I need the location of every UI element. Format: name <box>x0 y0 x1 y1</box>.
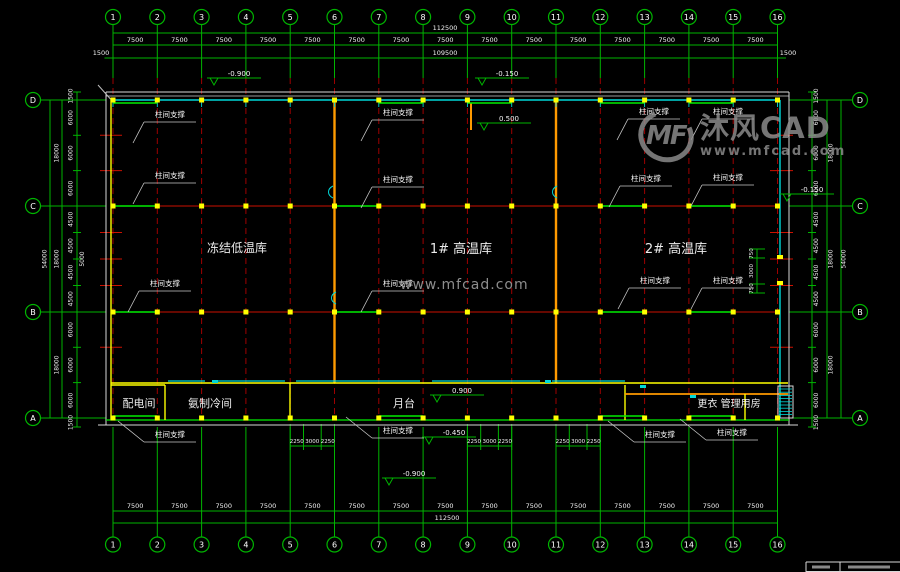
svg-text:1: 1 <box>110 13 115 22</box>
svg-text:2250: 2250 <box>556 439 570 445</box>
svg-text:柱间支撑: 柱间支撑 <box>155 429 185 439</box>
svg-text:4: 4 <box>243 13 248 22</box>
svg-text:7500: 7500 <box>304 36 321 44</box>
svg-text:1# 高温库: 1# 高温库 <box>430 241 492 257</box>
svg-text:4500: 4500 <box>813 264 820 279</box>
svg-text:109500: 109500 <box>433 49 458 57</box>
svg-text:7500: 7500 <box>260 502 277 510</box>
svg-text:11: 11 <box>551 13 561 22</box>
svg-text:18000: 18000 <box>828 355 835 374</box>
svg-text:16: 16 <box>772 541 782 550</box>
svg-text:6000: 6000 <box>813 357 820 372</box>
svg-text:7500: 7500 <box>570 36 587 44</box>
svg-text:7500: 7500 <box>215 502 232 510</box>
svg-text:6000: 6000 <box>68 322 75 337</box>
svg-text:7500: 7500 <box>437 502 454 510</box>
svg-text:柱间支撑: 柱间支撑 <box>645 429 675 439</box>
svg-text:4500: 4500 <box>813 211 820 226</box>
svg-text:1500: 1500 <box>93 49 110 57</box>
svg-text:3000: 3000 <box>305 439 319 445</box>
svg-text:-0.900: -0.900 <box>403 470 426 478</box>
svg-text:18000: 18000 <box>54 355 61 374</box>
svg-text:-0.150: -0.150 <box>496 70 519 78</box>
svg-text:3: 3 <box>199 541 204 550</box>
svg-text:4500: 4500 <box>68 238 75 253</box>
dimensions: 1125007500750075007500750075007500750075… <box>42 24 848 523</box>
svg-text:7500: 7500 <box>437 36 454 44</box>
svg-text:7500: 7500 <box>570 502 587 510</box>
svg-text:A: A <box>857 414 863 423</box>
svg-text:更衣 管理用房: 更衣 管理用房 <box>697 397 760 410</box>
svg-text:1500: 1500 <box>813 415 820 430</box>
svg-text:18000: 18000 <box>54 249 61 268</box>
svg-text:15: 15 <box>728 13 738 22</box>
svg-text:7: 7 <box>376 541 381 550</box>
svg-text:6000: 6000 <box>68 110 75 125</box>
svg-text:柱间支撑: 柱间支撑 <box>713 275 743 285</box>
svg-text:7500: 7500 <box>127 502 144 510</box>
svg-text:7500: 7500 <box>526 36 543 44</box>
svg-text:8: 8 <box>421 13 426 22</box>
svg-text:3: 3 <box>199 13 204 22</box>
svg-text:7500: 7500 <box>614 502 631 510</box>
svg-text:5000: 5000 <box>79 251 86 266</box>
svg-text:柱间支撑: 柱间支撑 <box>383 107 413 117</box>
svg-text:柱间支撑: 柱间支撑 <box>383 278 413 288</box>
svg-text:16: 16 <box>772 13 782 22</box>
svg-text:2250: 2250 <box>498 439 512 445</box>
svg-text:5: 5 <box>288 13 293 22</box>
svg-text:6: 6 <box>332 13 337 22</box>
svg-text:7: 7 <box>376 13 381 22</box>
svg-text:-0.450: -0.450 <box>443 429 466 437</box>
svg-text:9: 9 <box>465 541 470 550</box>
svg-text:2250: 2250 <box>467 439 481 445</box>
svg-text:11: 11 <box>551 541 561 550</box>
svg-text:7500: 7500 <box>481 36 498 44</box>
svg-text:柱间支撑: 柱间支撑 <box>383 174 413 184</box>
svg-text:柱间支撑: 柱间支撑 <box>713 106 743 116</box>
svg-text:-0.150: -0.150 <box>801 186 824 194</box>
svg-text:18000: 18000 <box>828 249 835 268</box>
svg-text:7500: 7500 <box>171 36 188 44</box>
svg-text:10: 10 <box>507 13 517 22</box>
svg-text:14: 14 <box>684 541 694 550</box>
svg-text:2250: 2250 <box>290 439 304 445</box>
svg-text:柱间支撑: 柱间支撑 <box>717 427 747 437</box>
svg-text:7500: 7500 <box>614 36 631 44</box>
svg-text:15: 15 <box>728 541 738 550</box>
svg-text:5: 5 <box>288 541 293 550</box>
svg-text:12: 12 <box>595 541 605 550</box>
svg-text:4500: 4500 <box>68 264 75 279</box>
svg-text:4500: 4500 <box>813 291 820 306</box>
svg-text:7500: 7500 <box>348 36 365 44</box>
svg-text:2250: 2250 <box>587 439 601 445</box>
floor-plan-canvas: 1122334455667788991010111112121313141415… <box>0 0 900 572</box>
svg-text:B: B <box>857 308 863 317</box>
svg-text:7500: 7500 <box>703 502 720 510</box>
svg-text:7500: 7500 <box>393 502 410 510</box>
svg-text:6000: 6000 <box>813 392 820 407</box>
svg-text:3000: 3000 <box>571 439 585 445</box>
svg-text:冻结低温库: 冻结低温库 <box>207 240 267 255</box>
svg-text:8: 8 <box>421 541 426 550</box>
svg-text:18000: 18000 <box>828 143 835 162</box>
svg-text:6000: 6000 <box>68 357 75 372</box>
svg-text:7500: 7500 <box>348 502 365 510</box>
svg-text:4: 4 <box>243 541 248 550</box>
svg-text:2250: 2250 <box>321 439 335 445</box>
svg-text:氨制冷间: 氨制冷间 <box>188 397 232 410</box>
svg-text:7500: 7500 <box>260 36 277 44</box>
svg-text:7500: 7500 <box>526 502 543 510</box>
svg-text:18000: 18000 <box>54 143 61 162</box>
svg-text:112500: 112500 <box>435 514 460 522</box>
columns <box>111 98 781 421</box>
svg-text:750: 750 <box>749 248 755 259</box>
svg-text:10: 10 <box>507 541 517 550</box>
svg-text:6000: 6000 <box>813 110 820 125</box>
svg-text:6000: 6000 <box>68 145 75 160</box>
svg-text:7500: 7500 <box>747 502 764 510</box>
svg-text:3000: 3000 <box>483 439 497 445</box>
svg-text:13: 13 <box>640 13 650 22</box>
svg-text:7500: 7500 <box>393 36 410 44</box>
svg-text:0.500: 0.500 <box>499 115 519 123</box>
svg-text:1500: 1500 <box>813 88 820 103</box>
svg-text:柱间支撑: 柱间支撑 <box>713 172 743 182</box>
svg-text:3000: 3000 <box>749 264 755 278</box>
svg-text:6000: 6000 <box>68 180 75 195</box>
svg-text:1500: 1500 <box>780 49 797 57</box>
svg-text:112500: 112500 <box>433 24 458 32</box>
svg-text:C: C <box>30 202 36 211</box>
svg-text:13: 13 <box>640 541 650 550</box>
title-block <box>806 562 900 572</box>
svg-text:B: B <box>30 308 36 317</box>
svg-text:7500: 7500 <box>747 36 764 44</box>
svg-text:柱间支撑: 柱间支撑 <box>639 106 669 116</box>
svg-text:12: 12 <box>595 13 605 22</box>
svg-text:1: 1 <box>110 541 115 550</box>
svg-text:0.900: 0.900 <box>452 387 472 395</box>
svg-text:D: D <box>30 96 36 105</box>
svg-text:配电间: 配电间 <box>123 397 156 410</box>
svg-text:7500: 7500 <box>481 502 498 510</box>
brace-labels: 柱间支撑柱间支撑柱间支撑柱间支撑柱间支撑柱间支撑柱间支撑柱间支撑柱间支撑柱间支撑… <box>118 106 758 442</box>
svg-text:1500: 1500 <box>68 88 75 103</box>
svg-text:7500: 7500 <box>658 36 675 44</box>
svg-text:C: C <box>857 202 863 211</box>
svg-text:4500: 4500 <box>813 238 820 253</box>
svg-text:54000: 54000 <box>42 249 49 268</box>
cad-viewport: 1122334455667788991010111112121313141415… <box>0 0 900 572</box>
svg-text:柱间支撑: 柱间支撑 <box>640 275 670 285</box>
svg-text:柱间支撑: 柱间支撑 <box>155 109 185 119</box>
svg-text:柱间支撑: 柱间支撑 <box>631 173 661 183</box>
svg-text:2: 2 <box>155 13 160 22</box>
svg-text:柱间支撑: 柱间支撑 <box>383 425 413 435</box>
svg-text:4500: 4500 <box>68 211 75 226</box>
svg-text:7500: 7500 <box>304 502 321 510</box>
svg-text:6000: 6000 <box>813 145 820 160</box>
svg-text:1500: 1500 <box>68 415 75 430</box>
svg-text:2# 高温库: 2# 高温库 <box>645 241 707 257</box>
svg-text:月台: 月台 <box>393 396 415 410</box>
svg-text:9: 9 <box>465 13 470 22</box>
room-labels: 冻结低温库1# 高温库2# 高温库配电间氨制冷间月台更衣 管理用房 <box>123 240 761 410</box>
svg-text:2: 2 <box>155 541 160 550</box>
svg-text:4500: 4500 <box>68 291 75 306</box>
svg-text:7500: 7500 <box>215 36 232 44</box>
svg-text:7500: 7500 <box>658 502 675 510</box>
svg-text:柱间支撑: 柱间支撑 <box>155 170 185 180</box>
svg-text:14: 14 <box>684 13 694 22</box>
svg-text:A: A <box>30 414 36 423</box>
svg-text:6: 6 <box>332 541 337 550</box>
svg-text:-0.900: -0.900 <box>228 70 251 78</box>
svg-text:6000: 6000 <box>68 392 75 407</box>
svg-text:D: D <box>857 96 863 105</box>
svg-text:7500: 7500 <box>703 36 720 44</box>
svg-text:7500: 7500 <box>171 502 188 510</box>
svg-text:6000: 6000 <box>813 322 820 337</box>
svg-text:柱间支撑: 柱间支撑 <box>150 278 180 288</box>
svg-text:54000: 54000 <box>841 249 848 268</box>
svg-text:7500: 7500 <box>127 36 144 44</box>
